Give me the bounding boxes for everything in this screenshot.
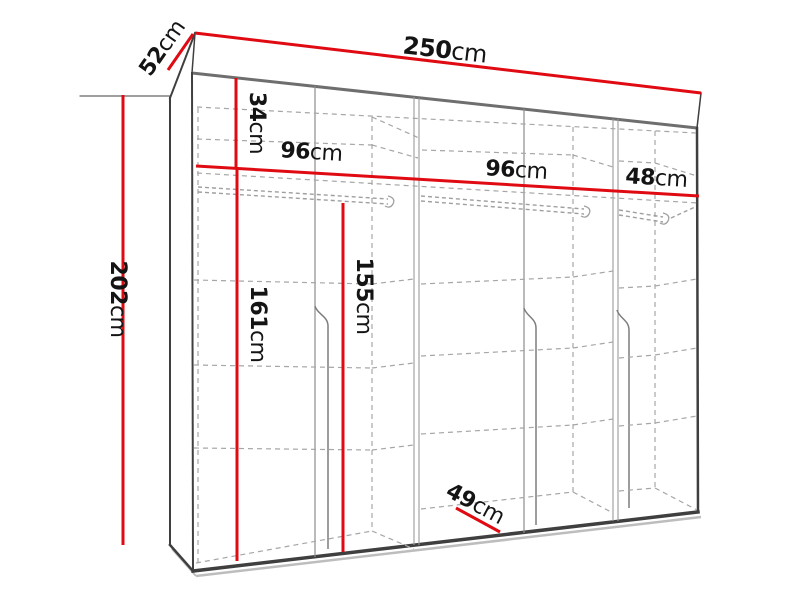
dimension-top-shelf-label: 34cm (244, 92, 269, 154)
hanging-rod-1 (198, 192, 388, 204)
hanging-rod-2 (421, 201, 584, 214)
dimension-height: 202cm (105, 95, 130, 545)
top-shelf-bottom-edge (197, 173, 698, 203)
shelf-slant (372, 279, 414, 284)
dimension-sections: 96cm 96cm 48cm (196, 138, 699, 196)
floor-depth-slant-3 (655, 488, 697, 510)
shelf-slant (372, 363, 414, 368)
dimension-width-label: 250cm (401, 31, 488, 68)
shelf-slant (372, 445, 414, 450)
shelf-line (619, 355, 655, 358)
top-right-corner-edge (697, 93, 701, 128)
diagram-canvas: 250cm 52cm 202cm 34cm 96cm 96cm 48cm 161… (0, 0, 800, 600)
front-left-edge (192, 73, 193, 571)
shelf-slant (655, 348, 697, 355)
bottom-front-edge (193, 512, 698, 571)
shelf-line (421, 277, 573, 284)
dimension-hanging-left-label: 161cm (245, 286, 270, 363)
dimension-top-shelf: 34cm (236, 78, 269, 168)
bottom-back-edge-3 (619, 488, 655, 491)
dimension-height-label: 202cm (105, 261, 130, 338)
rod-bracket-3 (660, 213, 669, 224)
shelf-line (194, 448, 372, 450)
dimension-section-middle-label: 96cm (485, 156, 549, 185)
rod-bracket-2 (581, 206, 590, 217)
floor-shadow (196, 517, 701, 576)
shelf-line (194, 280, 372, 284)
wardrobe-technical-drawing: 250cm 52cm 202cm 34cm 96cm 96cm 48cm 161… (0, 0, 800, 600)
dimension-width: 250cm (195, 31, 701, 93)
wardrobe-outline (80, 33, 701, 576)
door-handle-1 (315, 306, 328, 549)
top-shelf-slant-2 (573, 155, 613, 167)
shelf-slant (573, 419, 613, 425)
dimension-hanging-middle: 155cm (343, 203, 376, 552)
top-shelf-slant-1 (372, 145, 418, 158)
shelf-slant (573, 342, 613, 348)
dimension-hanging-left: 161cm (237, 168, 270, 561)
dimension-hanging-middle-label: 155cm (351, 258, 376, 335)
hanging-rod-3 (619, 210, 663, 217)
hanging-rod-1 (198, 187, 388, 199)
dimension-interior-depth: 49cm (442, 479, 509, 532)
floor-depth-slant-2 (573, 492, 613, 513)
rod-back-slant-3 (671, 207, 695, 218)
rod-bracket-1 (385, 196, 394, 207)
dimension-interior-depth-label: 49cm (442, 479, 509, 530)
front-right-edge (697, 128, 698, 512)
top-corner-slant-1 (372, 117, 419, 138)
dimension-depth: 52cm (135, 16, 193, 81)
shelf-line (194, 365, 372, 368)
shelf-slant (573, 271, 613, 277)
door-handle-2 (524, 308, 536, 525)
shelf-line (619, 286, 655, 288)
top-shelf-back-2 (422, 150, 573, 155)
shelf-line (619, 423, 655, 426)
shelf-slant (655, 416, 697, 423)
shelf-line (421, 348, 573, 356)
dimension-section-right-label: 48cm (625, 164, 689, 193)
dimension-section-left-label: 96cm (280, 138, 344, 167)
shelf-line (421, 425, 573, 434)
side-panel-bottom-slant (170, 545, 193, 571)
top-shelf-back-3 (619, 161, 655, 163)
door-handle-3 (617, 310, 629, 508)
shelf-slant (655, 279, 697, 286)
